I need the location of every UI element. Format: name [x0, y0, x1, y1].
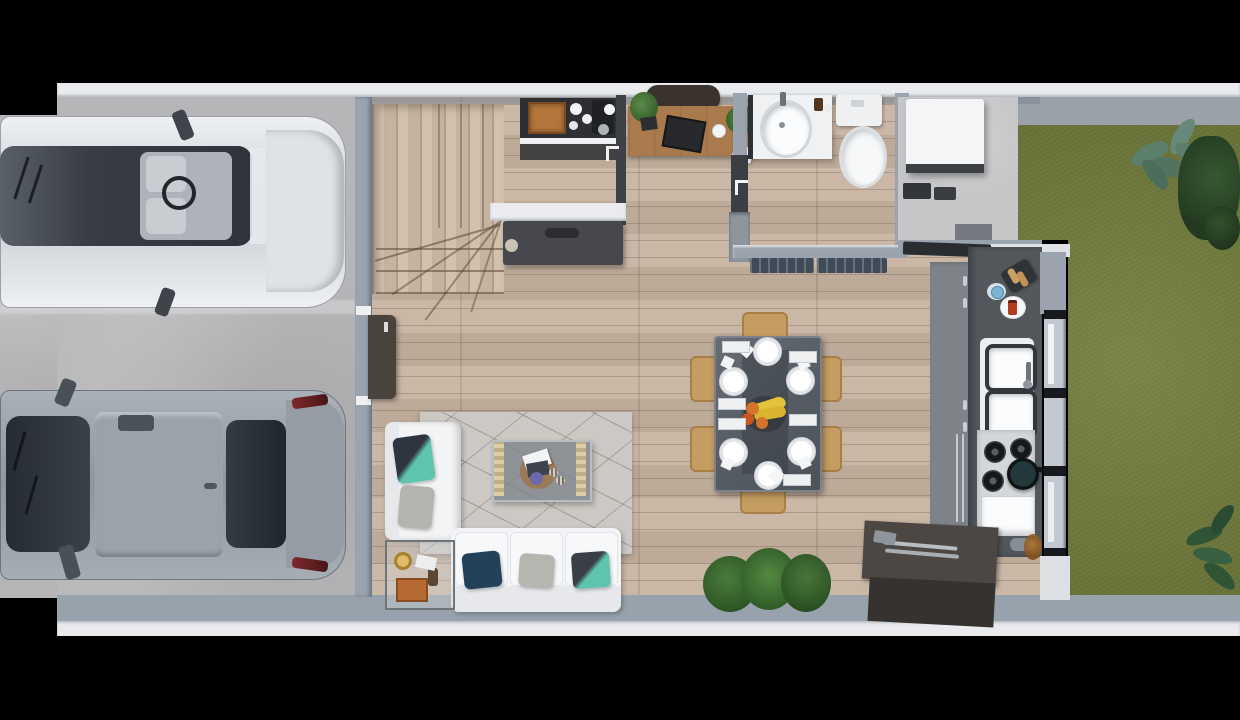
- garage-entry-door: [368, 315, 396, 399]
- car-gray-windshield: [6, 416, 90, 552]
- orange-crate: [396, 578, 428, 602]
- burner-1: [984, 441, 1006, 463]
- bath-mat-2: [817, 258, 887, 273]
- island-side: [867, 577, 995, 628]
- pillow-gray: [518, 553, 555, 588]
- macaron-1: [549, 468, 558, 477]
- espresso-cup: [604, 104, 615, 115]
- toilet-tank: [836, 94, 882, 126]
- tray-decor: [530, 472, 543, 485]
- outer-wall-bottom: [57, 621, 1240, 636]
- pillow-navy: [461, 550, 503, 590]
- bathroom-bottom-wall: [733, 245, 909, 258]
- jam-jar: [1008, 300, 1017, 315]
- car-gray-sunroof: [118, 415, 154, 431]
- plate-2: [719, 367, 748, 396]
- door-jamb-top: [356, 306, 371, 315]
- towel-rails: [956, 434, 968, 522]
- lawn-top-band: [1018, 97, 1240, 125]
- car-gray-rear: [286, 400, 344, 568]
- stairs: [372, 104, 504, 294]
- macaron-2: [556, 476, 565, 485]
- vanity-edge: [748, 95, 753, 159]
- cabinet-handle-1: [963, 276, 967, 286]
- cutlery-mat-2: [718, 398, 746, 410]
- coffee-table-leg-right: [576, 442, 586, 496]
- window-frame-3: [1044, 466, 1066, 476]
- table-lamp: [394, 552, 412, 570]
- console-knob: [505, 239, 518, 252]
- indoor-plant: [703, 548, 831, 618]
- car-silver-rear: [266, 130, 344, 292]
- plate-1: [753, 337, 782, 366]
- burner-3: [982, 470, 1004, 492]
- bathroom-left-wall-top: [733, 93, 747, 155]
- appliance-base: [906, 164, 984, 173]
- car-gray: [0, 383, 348, 589]
- letterbox-bottom: [0, 636, 1240, 720]
- pillow-gray-chaise: [397, 485, 435, 530]
- coffee-cup-3: [569, 121, 578, 130]
- vanity-soap: [824, 104, 832, 112]
- utility-appliance: [906, 99, 984, 173]
- sink-drain: [779, 122, 785, 128]
- kitchen-right-wall-top: [1040, 252, 1066, 314]
- letterbox-top: [0, 0, 1240, 83]
- toilet-flush-button: [851, 100, 864, 107]
- window-frame-2: [1044, 388, 1066, 398]
- steering-wheel: [162, 176, 196, 210]
- car-silver: [0, 112, 348, 310]
- cutlery-mat-1: [722, 341, 750, 353]
- door-handle: [384, 322, 388, 332]
- kitchen-faucet: [1026, 362, 1031, 382]
- espresso-machine-dial: [598, 124, 609, 135]
- coffee-cup-1: [570, 103, 582, 115]
- door-frame-mark: [606, 146, 619, 161]
- bush-top-right-2: [1205, 206, 1240, 250]
- frying-pan: [1007, 458, 1039, 490]
- black-corner-top-left: [0, 83, 57, 115]
- toilet-bowl: [839, 126, 887, 188]
- wall-corner-bottom-right: [1040, 556, 1070, 600]
- utility-box-1: [903, 183, 931, 199]
- sofa-backrest: [451, 586, 621, 612]
- cutlery-mat-6: [783, 474, 811, 486]
- pillow-navy-teal: [392, 434, 436, 485]
- pillow-teal: [571, 551, 611, 590]
- vanity-bottle: [814, 98, 823, 111]
- window-glass-glint-1: [1048, 324, 1054, 384]
- window-glass-glint-2: [1048, 482, 1054, 542]
- cutlery-mat-5: [789, 414, 817, 426]
- car-gray-door-handle: [204, 483, 217, 489]
- floor-plan-render: [0, 0, 1240, 720]
- desk-tray: [640, 116, 658, 131]
- coffee-cup-2: [582, 114, 592, 124]
- window-strip: [1044, 310, 1066, 558]
- burner-2: [1010, 438, 1032, 460]
- plant-tuft-3: [781, 554, 831, 612]
- cabinet-handle-4: [963, 422, 967, 432]
- bathroom-sink-basin: [760, 100, 812, 158]
- fern-bottom-right: [1185, 508, 1240, 596]
- cabinet-handle-2: [963, 298, 967, 308]
- car-silver-pillar: [250, 148, 266, 244]
- utility-box-2: [934, 187, 956, 200]
- faucet-base: [1023, 380, 1032, 389]
- blue-cup: [991, 286, 1004, 299]
- coffee-table-leg-left: [494, 442, 504, 496]
- console-handle: [545, 228, 579, 238]
- cabinet-handle-3: [963, 400, 967, 410]
- orange-3: [756, 417, 768, 429]
- desk-mug: [712, 124, 726, 138]
- door-frame-mark-2: [735, 180, 748, 195]
- cutlery-mat-3: [789, 351, 817, 363]
- car-gray-rear-window: [226, 420, 286, 548]
- sink-faucet: [780, 92, 786, 106]
- black-corner-bottom-left: [0, 598, 57, 638]
- cutlery-mat-4: [718, 418, 746, 430]
- console-back-wall: [490, 203, 626, 221]
- kitchen-island: [859, 521, 998, 628]
- window-frame-1: [1044, 310, 1066, 319]
- bath-mat-1: [750, 258, 814, 273]
- laptop: [662, 115, 707, 153]
- wooden-box: [528, 102, 566, 134]
- coffee-station-alcove: [520, 144, 616, 160]
